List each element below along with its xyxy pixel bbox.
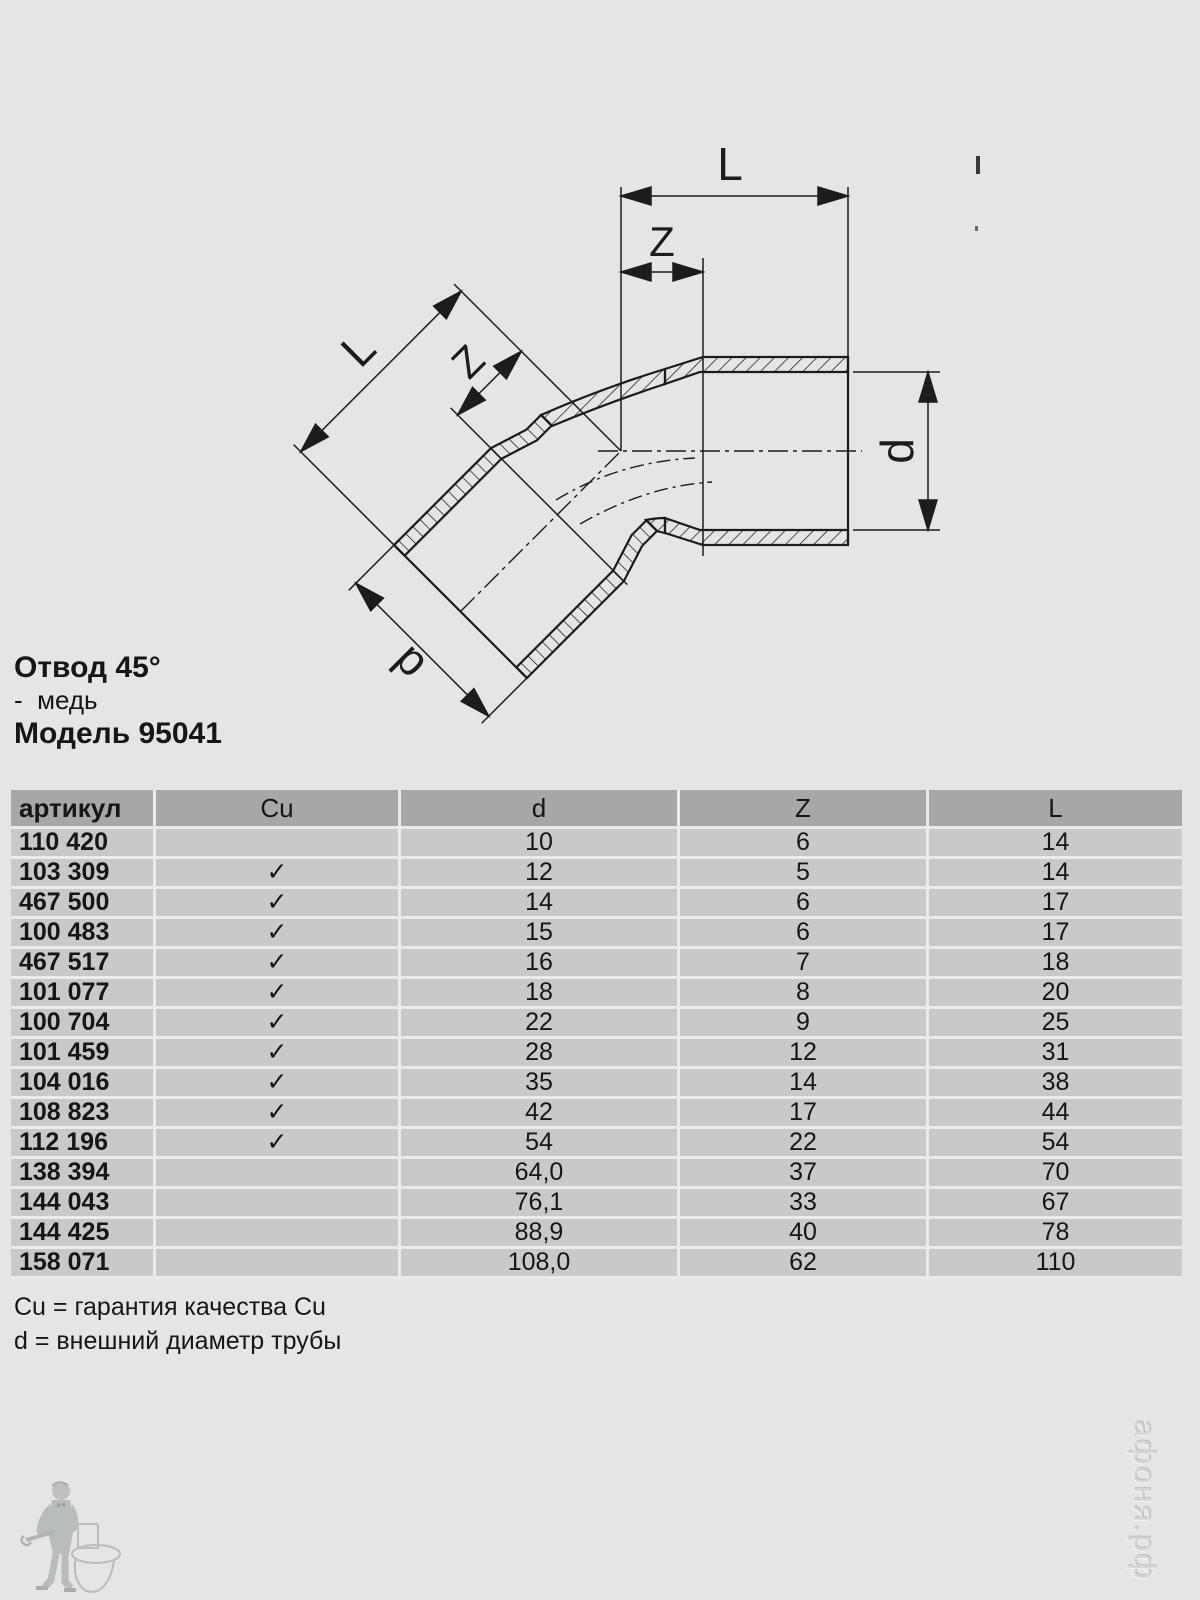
cu-checkmark-cell: ✓: [153, 1039, 398, 1066]
z-value-cell: 6: [677, 889, 926, 916]
d-value-cell: 22: [398, 1009, 677, 1036]
d-value-cell: 54: [398, 1129, 677, 1156]
article-cell: 144 043: [11, 1189, 153, 1216]
l-value-cell: 67: [926, 1189, 1182, 1216]
arrow-icon: [919, 500, 937, 530]
table-row: 100 483✓15617: [11, 919, 1182, 949]
table-row: 110 42010614: [11, 829, 1182, 859]
dim-label-Z: Z: [442, 336, 493, 387]
dim-line-L: [301, 291, 462, 452]
spec-table: артикулCudZL 110 42010614103 309✓1251446…: [11, 790, 1182, 1279]
d-value-cell: 64,0: [398, 1159, 677, 1186]
arrow-icon: [621, 187, 651, 205]
article-cell: 108 823: [11, 1099, 153, 1126]
z-value-cell: 6: [677, 919, 926, 946]
article-cell: 467 517: [11, 949, 153, 976]
l-value-cell: 17: [926, 889, 1182, 916]
d-value-cell: 16: [398, 949, 677, 976]
z-value-cell: 62: [677, 1249, 926, 1276]
z-value-cell: 17: [677, 1099, 926, 1126]
table-row: 100 704✓22925: [11, 1009, 1182, 1039]
article-cell: 138 394: [11, 1159, 153, 1186]
d-value-cell: 42: [398, 1099, 677, 1126]
plumber-icon: [22, 1482, 121, 1592]
z-value-cell: 22: [677, 1129, 926, 1156]
z-value-cell: 33: [677, 1189, 926, 1216]
l-value-cell: 70: [926, 1159, 1182, 1186]
table-row: 101 077✓18820: [11, 979, 1182, 1009]
cu-checkmark-cell: [153, 1249, 398, 1276]
l-value-cell: 54: [926, 1129, 1182, 1156]
footnotes: Cu = гарантия качества Cu d = внешний ди…: [14, 1290, 341, 1358]
l-value-cell: 20: [926, 979, 1182, 1006]
socket-bottom-wall: [665, 518, 848, 545]
cu-checkmark-cell: ✓: [153, 1009, 398, 1036]
header-cell-l: L: [926, 790, 1182, 826]
table-row: 144 42588,94078: [11, 1219, 1182, 1249]
l-value-cell: 110: [926, 1249, 1182, 1276]
article-cell: 103 309: [11, 859, 153, 886]
table-row: 467 500✓14617: [11, 889, 1182, 919]
article-cell: 100 483: [11, 919, 153, 946]
z-value-cell: 8: [677, 979, 926, 1006]
cu-checkmark-cell: ✓: [153, 859, 398, 886]
dim-label-Z: Z: [649, 218, 675, 265]
bend-top-wall: [541, 369, 665, 426]
brand-logo: [18, 1476, 133, 1598]
cu-checkmark-cell: ✓: [153, 979, 398, 1006]
l-value-cell: 14: [926, 859, 1182, 886]
article-cell: 101 077: [11, 979, 153, 1006]
article-cell: 110 420: [11, 829, 153, 856]
cu-checkmark-cell: [153, 1219, 398, 1246]
d-value-cell: 18: [398, 979, 677, 1006]
arrow-icon: [621, 263, 651, 281]
socket-top-wall: [665, 357, 848, 384]
scan-mark: [976, 156, 980, 174]
dimension-top: L Z: [621, 138, 848, 556]
cu-checkmark-cell: ✓: [153, 1129, 398, 1156]
footnote-cu: Cu = гарантия качества Cu: [14, 1290, 341, 1324]
l-value-cell: 31: [926, 1039, 1182, 1066]
diagonal-socket-group: L Z d: [188, 250, 691, 753]
table-row: 467 517✓16718: [11, 949, 1182, 979]
table-row: 112 196✓542254: [11, 1129, 1182, 1159]
d-value-cell: 12: [398, 859, 677, 886]
l-value-cell: 44: [926, 1099, 1182, 1126]
d-value-cell: 88,9: [398, 1219, 677, 1246]
cu-checkmark-cell: [153, 1189, 398, 1216]
dim-label-L: L: [717, 138, 743, 190]
cu-checkmark-cell: ✓: [153, 919, 398, 946]
cu-checkmark-cell: [153, 829, 398, 856]
table-row: 144 04376,13367: [11, 1189, 1182, 1219]
d-value-cell: 14: [398, 889, 677, 916]
d-value-cell: 28: [398, 1039, 677, 1066]
l-value-cell: 17: [926, 919, 1182, 946]
extension-line: [294, 445, 394, 545]
z-value-cell: 37: [677, 1159, 926, 1186]
cu-checkmark-cell: ✓: [153, 949, 398, 976]
article-cell: 100 704: [11, 1009, 153, 1036]
title-block: Отвод 45° - медь Модель 95041: [14, 650, 222, 751]
bore-curve-1: [556, 458, 695, 500]
table-row: 104 016✓351438: [11, 1069, 1182, 1099]
cu-checkmark-cell: ✓: [153, 889, 398, 916]
page-subtitle: - медь: [14, 685, 222, 716]
dim-label-d: d: [380, 637, 435, 692]
article-cell: 467 500: [11, 889, 153, 916]
table-row: 101 459✓281231: [11, 1039, 1182, 1069]
footnote-d: d = внешний диаметр трубы: [14, 1324, 341, 1358]
header-cell-z: Z: [677, 790, 926, 826]
bore-curve-2: [580, 482, 712, 524]
l-value-cell: 38: [926, 1069, 1182, 1096]
scan-artifacts: [975, 156, 980, 231]
table-row: 138 39464,03770: [11, 1159, 1182, 1189]
header-cell-article: артикул: [11, 790, 153, 826]
l-value-cell: 78: [926, 1219, 1182, 1246]
d-value-cell: 15: [398, 919, 677, 946]
l-value-cell: 14: [926, 829, 1182, 856]
article-cell: 158 071: [11, 1249, 153, 1276]
table-row: 158 071108,062110: [11, 1249, 1182, 1279]
cu-checkmark-cell: ✓: [153, 1069, 398, 1096]
dimension-right-d: d: [853, 372, 940, 530]
z-value-cell: 6: [677, 829, 926, 856]
dim-label-d: d: [871, 438, 923, 464]
l-value-cell: 18: [926, 949, 1182, 976]
dim-label-L: L: [331, 322, 386, 377]
d-value-cell: 35: [398, 1069, 677, 1096]
page-title: Отвод 45°: [14, 650, 222, 685]
article-cell: 112 196: [11, 1129, 153, 1156]
table-row: 103 309✓12514: [11, 859, 1182, 889]
cu-checkmark-cell: ✓: [153, 1099, 398, 1126]
z-value-cell: 5: [677, 859, 926, 886]
table-header: артикулCudZL: [11, 790, 1182, 829]
table-row: 108 823✓421744: [11, 1099, 1182, 1129]
article-cell: 104 016: [11, 1069, 153, 1096]
watermark: афоня.рф: [1126, 1420, 1162, 1590]
z-value-cell: 7: [677, 949, 926, 976]
z-value-cell: 40: [677, 1219, 926, 1246]
header-cell-cu: Cu: [153, 790, 398, 826]
table-body: 110 42010614103 309✓12514467 500✓1461710…: [11, 829, 1182, 1279]
arrow-icon: [919, 372, 937, 402]
z-value-cell: 9: [677, 1009, 926, 1036]
cu-checkmark-cell: [153, 1159, 398, 1186]
z-value-cell: 14: [677, 1069, 926, 1096]
article-cell: 144 425: [11, 1219, 153, 1246]
arrow-icon: [818, 187, 848, 205]
page: { "title": { "line1": "Отвод 45°", "line…: [0, 0, 1200, 1600]
d-value-cell: 108,0: [398, 1249, 677, 1276]
z-value-cell: 12: [677, 1039, 926, 1066]
model-number: Модель 95041: [14, 716, 222, 751]
scan-mark: [975, 226, 978, 231]
d-value-cell: 76,1: [398, 1189, 677, 1216]
arrow-icon: [673, 263, 703, 281]
article-cell: 101 459: [11, 1039, 153, 1066]
l-value-cell: 25: [926, 1009, 1182, 1036]
d-value-cell: 10: [398, 829, 677, 856]
header-cell-d: d: [398, 790, 677, 826]
horizontal-socket: [541, 357, 862, 545]
